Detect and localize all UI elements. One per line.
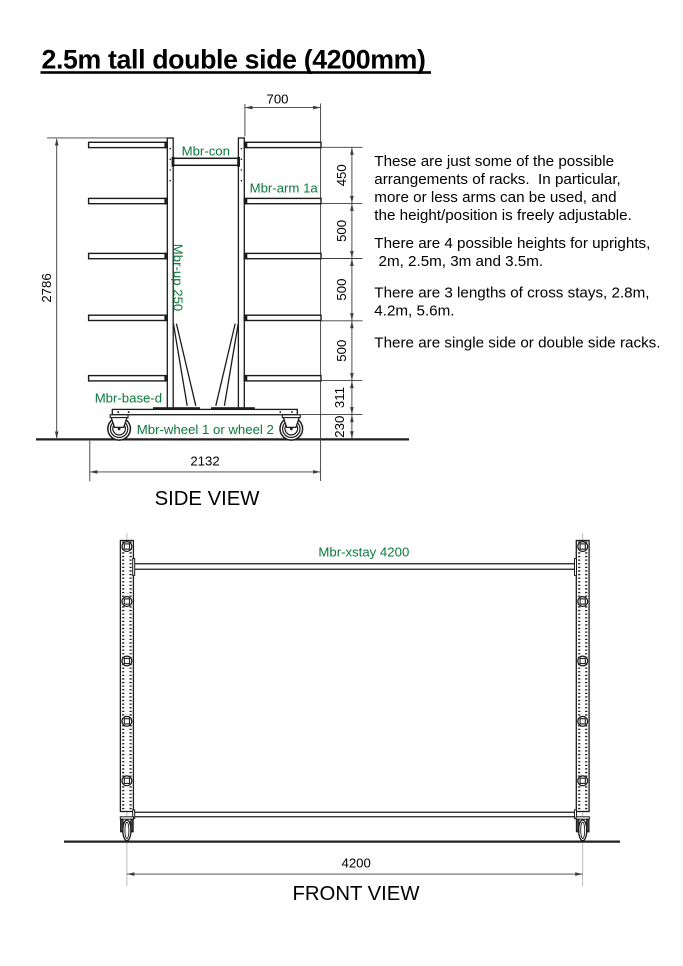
svg-text:500: 500	[334, 279, 349, 301]
svg-text:2786: 2786	[39, 273, 54, 302]
svg-text:There are 4 possible heights f: There are 4 possible heights for upright…	[374, 235, 650, 252]
svg-text:Mbr-wheel 1 or wheel 2: Mbr-wheel 1 or wheel 2	[137, 422, 274, 437]
svg-text:SIDE VIEW: SIDE VIEW	[155, 488, 261, 510]
svg-text:Mbr-base-d: Mbr-base-d	[95, 390, 162, 405]
svg-text:These are just some of the pos: These are just some of the possible	[374, 153, 614, 170]
svg-text:311: 311	[332, 387, 347, 408]
svg-text:4.2m, 5.6m.: 4.2m, 5.6m.	[374, 303, 454, 320]
svg-text:more or less arms can be used,: more or less arms can be used, and	[374, 189, 616, 206]
svg-text:230: 230	[332, 416, 347, 438]
svg-text:2.5m tall double side (4200mm): 2.5m tall double side (4200mm)	[42, 44, 426, 74]
svg-text:4200: 4200	[342, 855, 371, 870]
svg-text:Mbr-up 250: Mbr-up 250	[171, 244, 186, 311]
svg-text:Mbr-con: Mbr-con	[182, 144, 230, 159]
svg-text:500: 500	[334, 220, 349, 242]
svg-text:Mbr-arm 1a: Mbr-arm 1a	[250, 181, 319, 196]
svg-text:500: 500	[334, 340, 349, 362]
svg-text:FRONT VIEW: FRONT VIEW	[293, 883, 421, 905]
svg-text:Mbr-xstay 4200: Mbr-xstay 4200	[318, 544, 409, 559]
svg-text:There are single side or doubl: There are single side or double side rac…	[374, 334, 660, 351]
svg-text:450: 450	[334, 164, 349, 186]
svg-text:arrangements of racks. In par: arrangements of racks. In particular,	[374, 171, 621, 188]
svg-text:the height/position is freely: the height/position is freely adjustable…	[374, 207, 632, 224]
svg-text:2132: 2132	[190, 454, 219, 469]
svg-text:700: 700	[266, 91, 288, 106]
svg-text:There are 3 lengths of cross s: There are 3 lengths of cross stays, 2.8m…	[374, 285, 649, 302]
svg-text:2m, 2.5m, 3m and 3.5m.: 2m, 2.5m, 3m and 3.5m.	[379, 253, 544, 270]
